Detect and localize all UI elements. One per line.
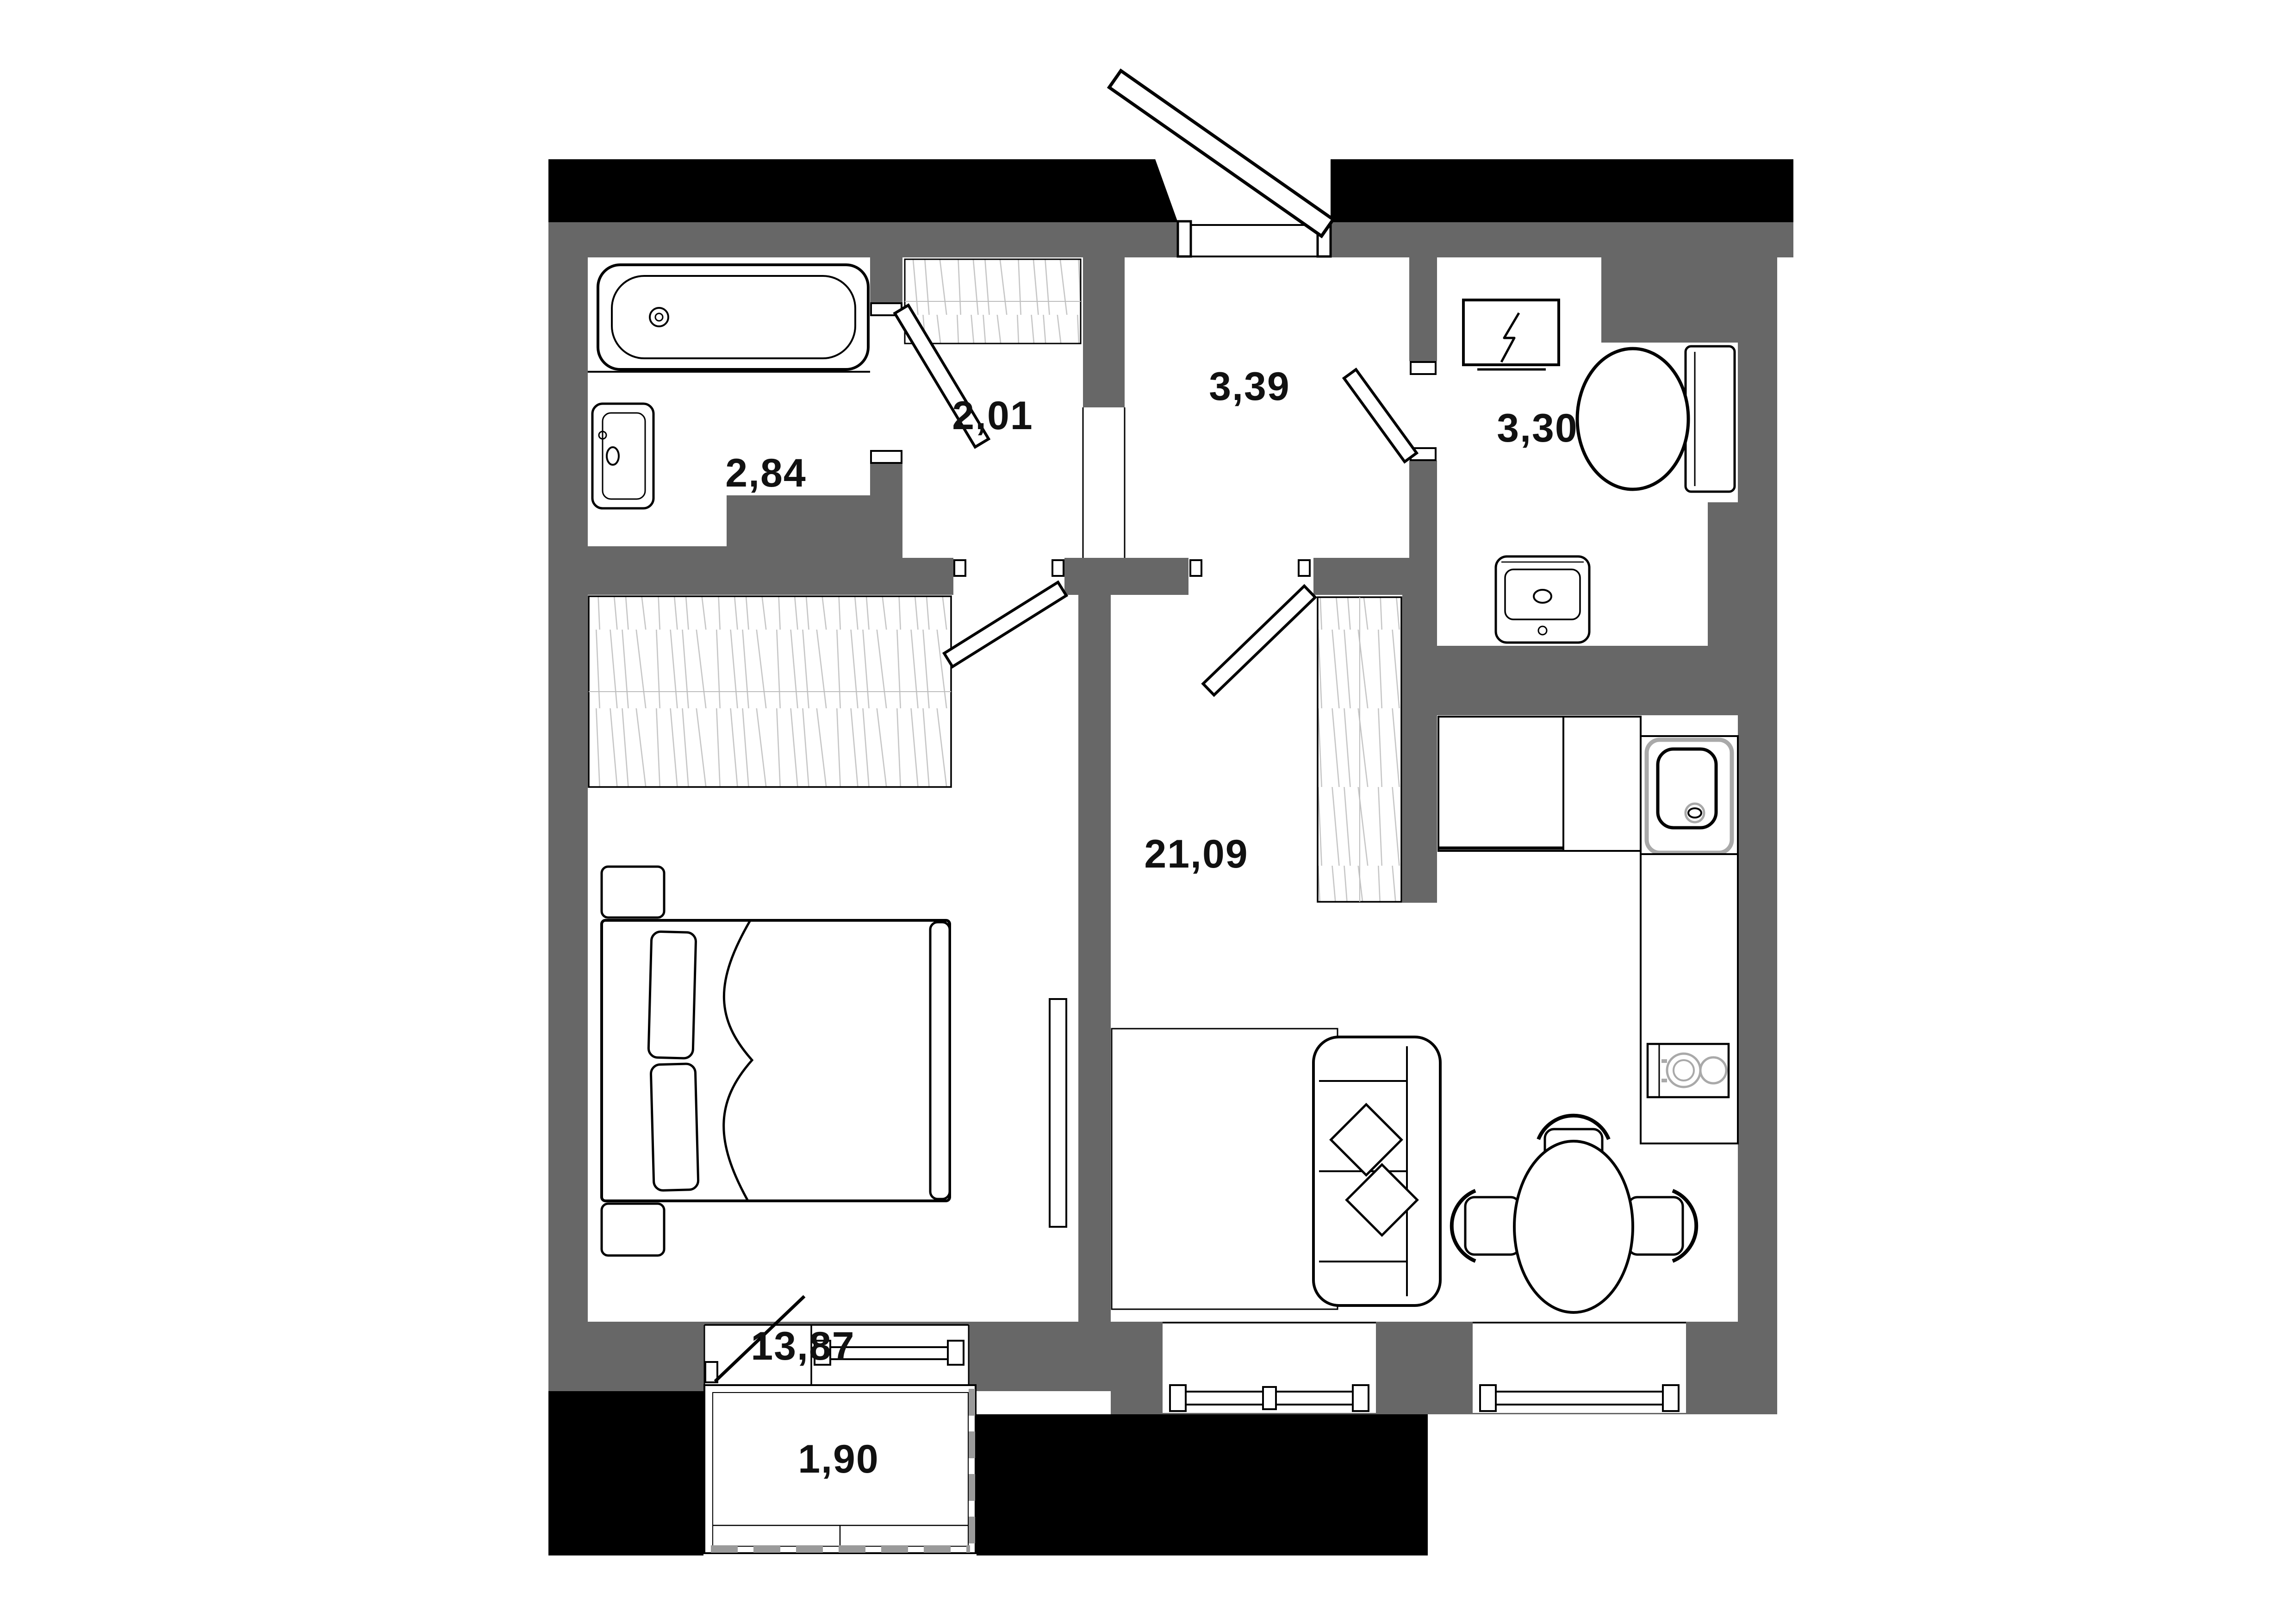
living-wardrobe bbox=[1318, 597, 1401, 902]
entrance-jamb-left bbox=[1178, 221, 1191, 256]
hall-closet-wardrobe bbox=[905, 259, 1081, 344]
nightstand-top bbox=[602, 867, 664, 918]
bed-pillow-2 bbox=[651, 1063, 698, 1190]
label-entry-hall: 3,39 bbox=[1209, 364, 1290, 409]
living-window2-recess bbox=[1473, 1323, 1686, 1413]
nightstand-bottom bbox=[602, 1204, 664, 1255]
facade-band-bottom-left bbox=[548, 1391, 703, 1555]
label-toilet: 3,30 bbox=[1497, 406, 1578, 450]
living-door-opening bbox=[1188, 558, 1313, 595]
tv-icon bbox=[1050, 999, 1066, 1227]
passage-hall-entry bbox=[1083, 407, 1125, 558]
floor-plan-page: 2,84 2,01 3,39 3,30 21,09 13,87 1,90 bbox=[0, 0, 2296, 1624]
facade-band-bottom-mid bbox=[977, 1414, 1428, 1555]
label-bathroom: 2,84 bbox=[725, 451, 806, 495]
label-bedroom: 13,87 bbox=[751, 1324, 855, 1368]
label-hall-closet: 2,01 bbox=[952, 394, 1033, 438]
sofa-icon bbox=[1313, 1037, 1440, 1305]
bed-footboard bbox=[930, 922, 950, 1199]
toilet-sink-icon bbox=[1496, 556, 1589, 643]
bed-pillow-1 bbox=[648, 931, 696, 1058]
bed-icon bbox=[602, 920, 950, 1201]
electrical-panel-icon bbox=[1463, 300, 1559, 369]
bedroom-wardrobe bbox=[589, 596, 951, 787]
bathtub-icon bbox=[588, 265, 870, 372]
bathroom-sink-icon bbox=[592, 404, 653, 508]
floor-plan-canvas: 2,84 2,01 3,39 3,30 21,09 13,87 1,90 bbox=[0, 0, 2296, 1624]
toilet-icon bbox=[1577, 346, 1735, 492]
window-1-mullion bbox=[1263, 1387, 1276, 1409]
toilet-door-opening bbox=[1409, 361, 1437, 461]
label-balcony: 1,90 bbox=[798, 1437, 879, 1481]
dining-table-icon bbox=[1514, 1141, 1633, 1312]
label-living-kitchen: 21,09 bbox=[1144, 832, 1248, 876]
bathroom-door-opening bbox=[870, 303, 902, 463]
